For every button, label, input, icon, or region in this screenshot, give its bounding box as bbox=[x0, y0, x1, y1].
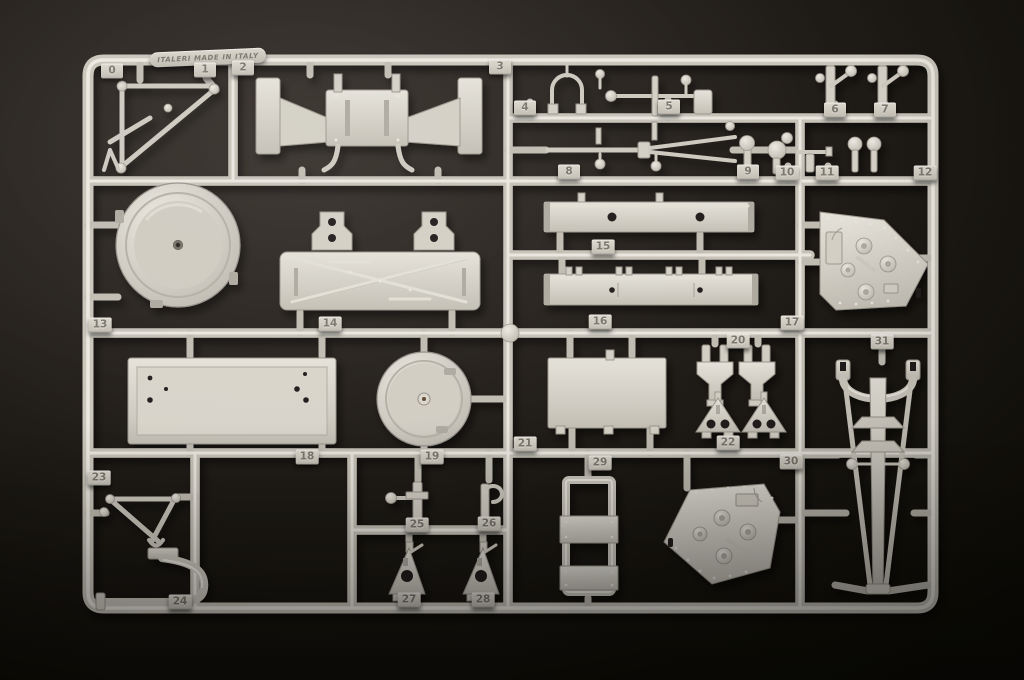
part-number-tab-0: 0 bbox=[101, 64, 123, 79]
sprue-rails bbox=[88, 60, 933, 608]
part-group-20-22 bbox=[696, 345, 786, 438]
part-21-box-plate bbox=[548, 350, 666, 434]
part-group-3-4-5 bbox=[548, 64, 712, 116]
part-number-tab-28: 28 bbox=[472, 593, 495, 608]
part-number-tab-20: 20 bbox=[727, 334, 750, 349]
part-group-25-26 bbox=[386, 482, 502, 520]
part-number-tab-10: 10 bbox=[776, 166, 799, 181]
part-number-tab-8: 8 bbox=[558, 165, 580, 180]
part-number-tab-18: 18 bbox=[296, 450, 319, 465]
part-number-tab-5: 5 bbox=[658, 100, 680, 115]
part-number-tab-26: 26 bbox=[478, 517, 501, 532]
part-number-tab-23: 23 bbox=[88, 471, 111, 486]
part-number-tab-27: 27 bbox=[398, 593, 421, 608]
part-number-tab-6: 6 bbox=[824, 103, 846, 118]
part-number-tab-13: 13 bbox=[89, 318, 112, 333]
part-23-a-frame bbox=[100, 494, 181, 546]
part-14-brackets bbox=[312, 212, 454, 250]
part-number-tab-17: 17 bbox=[781, 316, 804, 331]
part-tray bbox=[128, 358, 336, 444]
part-number-tab-19: 19 bbox=[421, 450, 444, 465]
part-number-tab-2: 2 bbox=[232, 61, 254, 76]
part-number-tab-30: 30 bbox=[780, 455, 803, 470]
part-19-drum bbox=[377, 352, 471, 446]
part-number-tab-29: 29 bbox=[589, 456, 612, 471]
sprue-photo: ITALERI MADE IN ITALY 012345678910111213… bbox=[0, 0, 1024, 680]
part-number-tab-1: 1 bbox=[194, 63, 216, 78]
part-number-tab-24: 24 bbox=[169, 595, 192, 610]
part-30-gusset-plate bbox=[664, 484, 780, 584]
part-number-tab-12: 12 bbox=[914, 166, 937, 181]
part-0-frame bbox=[104, 81, 219, 173]
part-16-rail bbox=[544, 267, 758, 305]
part-number-tab-25: 25 bbox=[406, 518, 429, 533]
part-wheel-drum bbox=[115, 183, 240, 308]
part-number-tab-15: 15 bbox=[592, 240, 615, 255]
part-2-chassis-plate bbox=[256, 74, 482, 170]
part-number-tab-9: 9 bbox=[737, 165, 759, 180]
part-number-tab-31: 31 bbox=[871, 335, 894, 350]
part-number-tab-22: 22 bbox=[717, 436, 740, 451]
part-number-tab-16: 16 bbox=[589, 315, 612, 330]
part-number-tab-3: 3 bbox=[489, 60, 511, 75]
part-15-rail bbox=[544, 193, 754, 232]
part-29-frame bbox=[560, 480, 618, 592]
part-17-gusset-plate bbox=[820, 212, 928, 310]
part-number-tab-7: 7 bbox=[874, 103, 896, 118]
part-number-tab-21: 21 bbox=[514, 437, 537, 452]
part-number-tab-4: 4 bbox=[514, 101, 536, 116]
part-number-tab-11: 11 bbox=[816, 166, 839, 181]
part-31-trail-leg bbox=[836, 360, 920, 594]
part-number-tab-14: 14 bbox=[319, 317, 342, 332]
part-14-panel bbox=[280, 212, 480, 310]
